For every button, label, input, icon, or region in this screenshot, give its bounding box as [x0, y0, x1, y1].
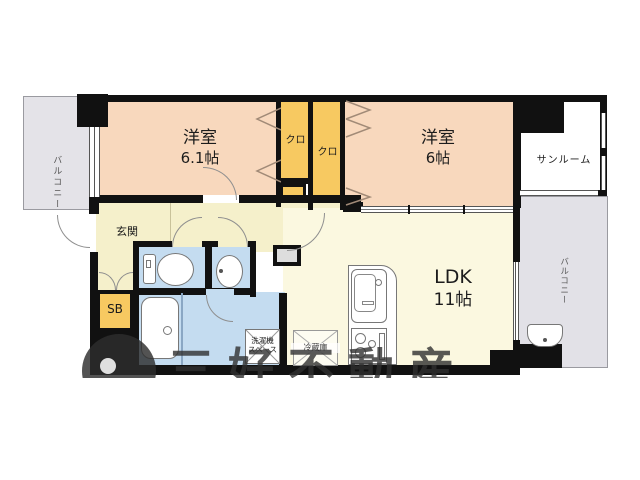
sunroom-window-bottom	[520, 190, 598, 196]
ldk-window-line	[515, 262, 516, 340]
wall-balcony-block	[518, 344, 562, 368]
wall-bottom	[90, 365, 520, 375]
sunroom-window-tick	[600, 148, 607, 156]
wall-bottomleft-block	[90, 328, 136, 375]
bath-washroom-divider	[181, 293, 183, 365]
kitchen-sink-bar-icon	[362, 301, 374, 305]
stove-burner1-icon	[355, 333, 366, 344]
balcony-right-label: バルコニー	[558, 248, 569, 314]
wall-under-closet-left	[276, 178, 313, 184]
stove-burner3-icon	[368, 340, 376, 348]
closet-left-folding-door-icon	[255, 106, 281, 184]
ldk-label: LDK 11帖	[408, 266, 498, 311]
closet-right-label: クロ	[313, 147, 342, 160]
wall-ldk-right-upper	[513, 208, 520, 262]
wall-sunroom-block	[520, 95, 564, 133]
closet-left-label: クロ	[281, 135, 310, 148]
bathtub-drain-icon	[163, 326, 172, 335]
sliding-door-tick2	[463, 205, 465, 214]
wall-ldk-corner-block	[490, 350, 520, 365]
toilet-tank-icon	[143, 254, 156, 284]
balcony-sink-icon	[527, 324, 563, 347]
room1-label: 洋室 6.1帖	[155, 128, 245, 168]
shoebox-label: SB	[96, 302, 134, 317]
closet-right-folding-door-icon	[345, 100, 372, 206]
sunroom-label: サンルーム	[528, 155, 600, 168]
washer-space-label: 洗濯機 スペース	[240, 336, 285, 354]
genkan-step-line	[170, 203, 171, 241]
ldk-window-right	[513, 262, 519, 340]
genkan-label: 玄関	[105, 225, 149, 239]
wall-wet-mid	[133, 288, 253, 295]
stove-burner2-icon	[355, 347, 366, 358]
stove-grill-icon	[379, 333, 385, 360]
balcony-left-window-line	[94, 127, 95, 197]
balcony-left-label: バルコニー	[50, 137, 61, 227]
sliding-door-tick1	[408, 205, 410, 214]
bathtub-icon	[141, 297, 179, 359]
washbasin-faucet-icon	[219, 269, 223, 273]
kitchen-faucet-icon	[375, 279, 382, 286]
toilet-bowl-icon	[157, 253, 194, 286]
kitchen-sink-basin-icon	[354, 274, 376, 312]
floor-plan: 冷蔵庫 洗濯機 スペース バルコニー 洋室 6.1帖 クロ クロ 洋室 6帖 サ…	[0, 0, 640, 480]
wall-toilet-sink-divider	[205, 245, 212, 293]
entrance-door-arc	[57, 215, 90, 248]
sliding-door-line	[361, 209, 513, 210]
refrigerator-label: 冷蔵庫	[291, 343, 340, 353]
wall-topleft-block	[77, 94, 108, 127]
toilet-button-icon	[146, 260, 151, 268]
balcony-sink-drain-icon	[543, 338, 547, 342]
sunroom-window-end	[598, 190, 607, 196]
wall-washroom-right	[279, 293, 287, 367]
room2-label: 洋室 6帖	[393, 128, 483, 168]
